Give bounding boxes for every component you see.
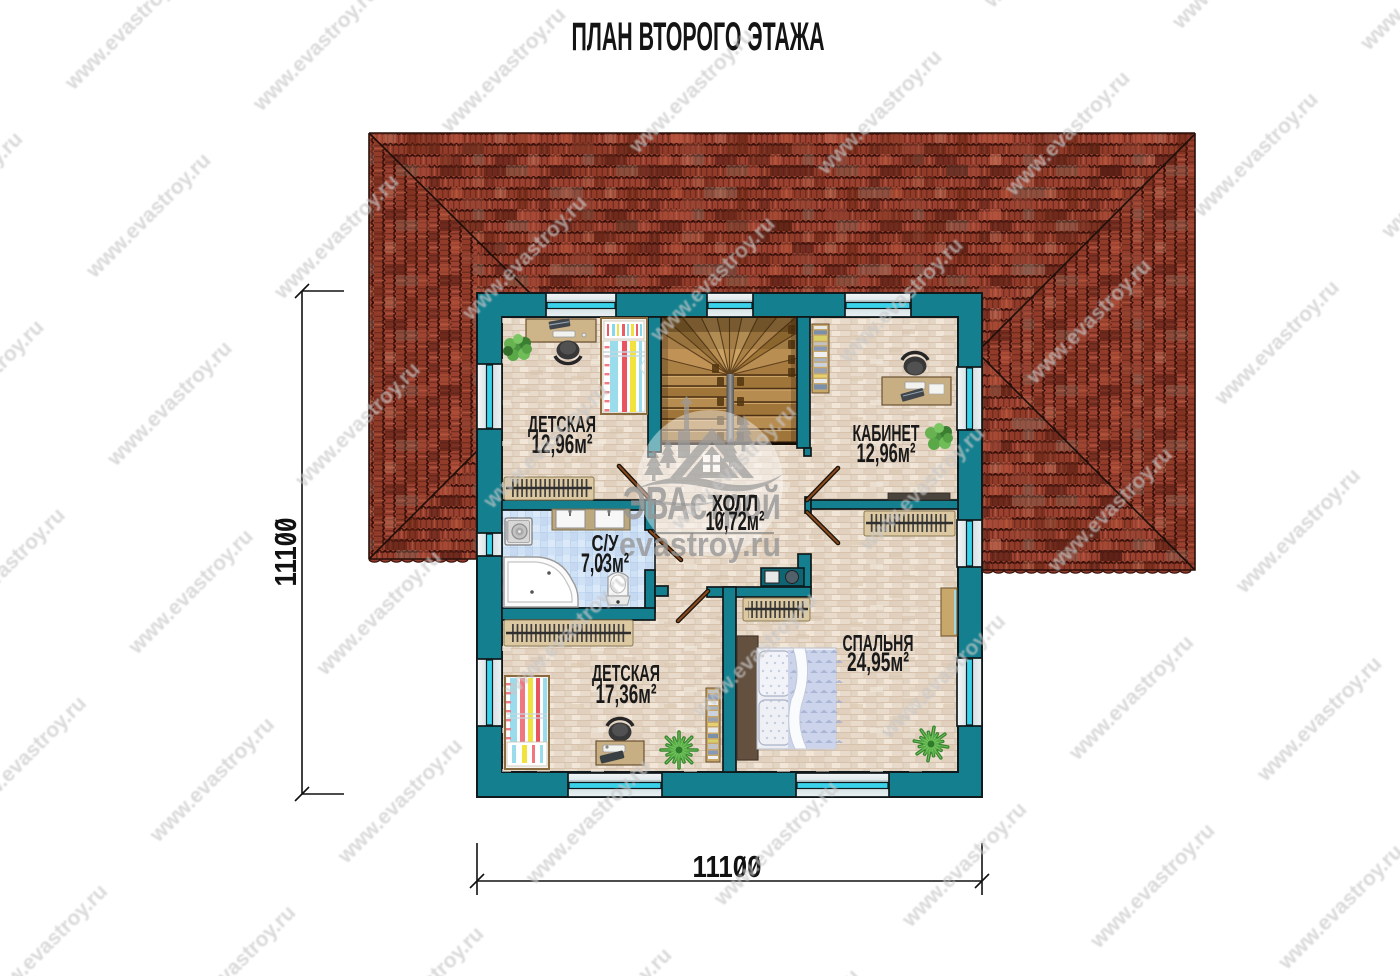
svg-text:ПЛАН ВТОРОГО ЭТАЖА: ПЛАН ВТОРОГО ЭТАЖА — [572, 15, 825, 59]
svg-text:11100: 11100 — [268, 518, 303, 587]
svg-text:12,96м²: 12,96м² — [857, 438, 916, 468]
svg-text:10,72м²: 10,72м² — [706, 506, 765, 536]
svg-text:17,36м²: 17,36м² — [596, 679, 657, 709]
svg-text:24,95м²: 24,95м² — [847, 647, 909, 677]
